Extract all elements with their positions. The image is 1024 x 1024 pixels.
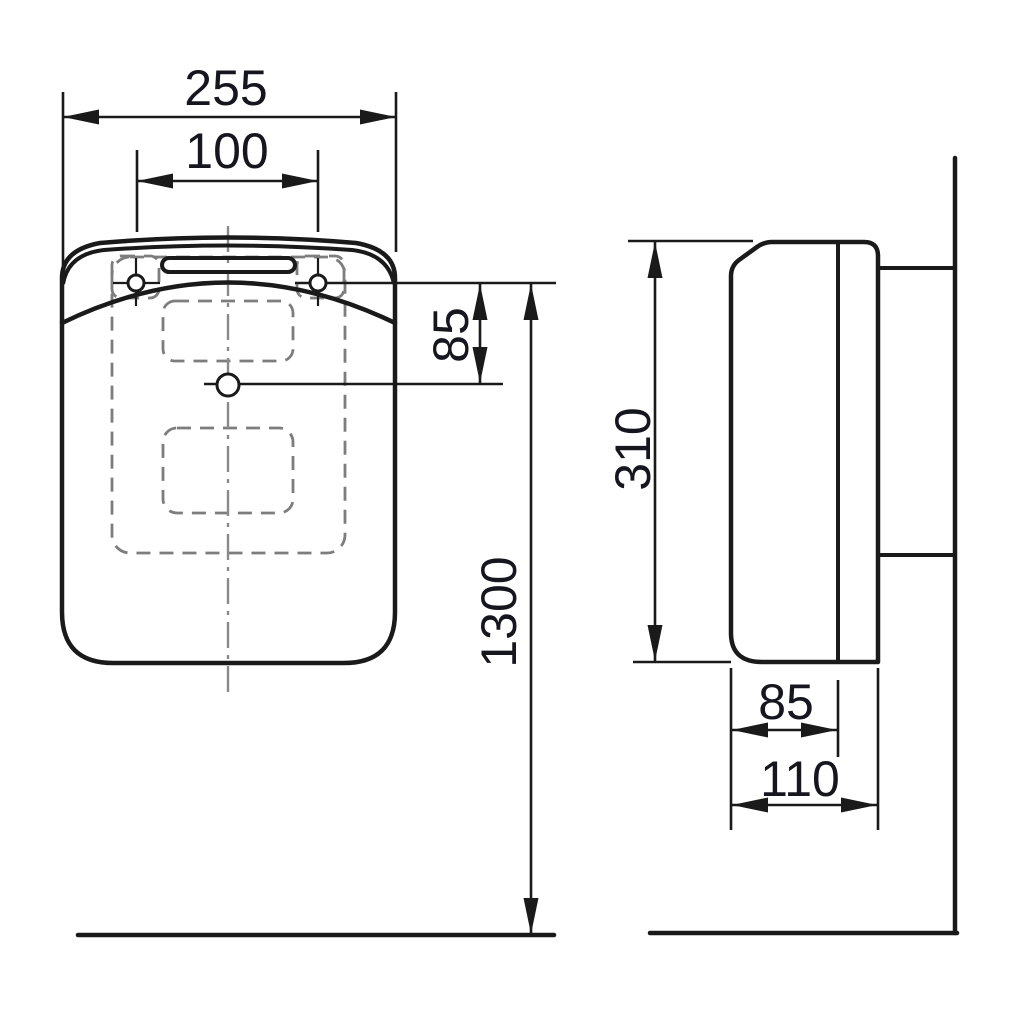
arrow-1300-bottom (524, 898, 539, 934)
outlet-hole (217, 374, 239, 396)
dim-label-100: 100 (185, 123, 268, 179)
arrow-310-top (648, 242, 663, 278)
dim-label-255: 255 (184, 60, 267, 116)
arrow-255-left (63, 110, 99, 125)
front-dimensions: 255 100 85 1300 (63, 60, 539, 935)
technical-drawing-canvas: 255 100 85 1300 (0, 0, 1024, 1024)
technical-drawing: 255 100 85 1300 (0, 0, 1024, 1024)
arrow-1300-top (524, 284, 539, 320)
dim-label-310: 310 (605, 407, 661, 490)
mounting-hole-left (128, 275, 144, 291)
arrow-110-right (841, 798, 877, 813)
side-outline (731, 242, 878, 662)
dim-hole-spacing: 100 (137, 123, 318, 232)
arrow-100-left (137, 174, 173, 189)
dim-holes-to-outlet: 85 (423, 283, 488, 384)
dim-label-85-side: 85 (758, 674, 814, 730)
dim-label-1300: 1300 (471, 556, 527, 667)
arrow-255-right (360, 110, 396, 125)
dim-label-85-front: 85 (423, 307, 479, 363)
side-view (650, 158, 957, 933)
arrow-310-bottom (648, 625, 663, 661)
arrow-100-right (282, 174, 318, 189)
dim-label-110: 110 (760, 751, 840, 807)
mounting-hole-right (310, 275, 326, 291)
